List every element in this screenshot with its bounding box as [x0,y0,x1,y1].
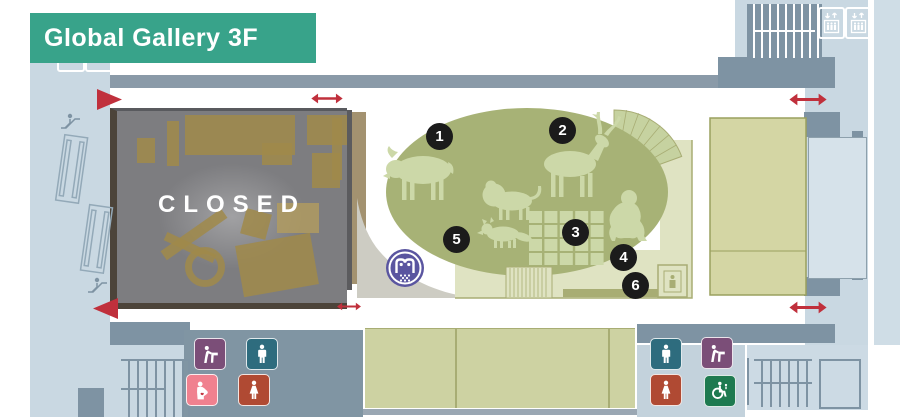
marker-number: 6 [631,277,639,294]
womens-restroom-icon [238,374,270,406]
page-title: Global Gallery 3F [30,13,316,63]
nursing-room-icon [186,374,218,406]
exhibit-marker-3: 3 [562,219,589,246]
exhibit-marker-1: 1 [426,123,453,150]
womens-restroom-icon [650,374,682,406]
escalator-shaft [56,135,88,204]
elevator-icon [845,7,872,39]
accessible-restroom-icon [704,375,736,407]
marker-number: 1 [435,128,443,145]
exhibit-marker-5: 5 [443,226,470,253]
floor-map: CLOSED [0,0,900,417]
double-arrow-icon [336,300,362,313]
mens-restroom-icon [246,338,278,370]
double-arrow-icon [310,91,344,106]
double-arrow-icon [786,91,830,108]
escalator-shaft [81,205,113,274]
marker-number: 4 [619,249,627,266]
stairs-exhibit-room [506,267,552,298]
elevator-icon [818,7,845,39]
marker-number: 5 [452,231,460,248]
khaki-room [710,118,806,295]
exhibit-marker-box [658,265,687,297]
page-title-text: Global Gallery 3F [44,24,258,53]
museum-logo-icon [385,248,425,288]
drinking-fountain-icon [701,337,733,369]
drinking-fountain-icon [194,338,226,370]
double-arrow-icon [786,299,830,316]
exhibit-marker-2: 2 [549,117,576,144]
escalator-icon [88,278,107,292]
exhibit-marker-6: 6 [622,272,649,299]
marker-number: 3 [571,224,579,241]
escalator-icon [61,114,80,128]
triangle-arrow-icon [96,88,123,111]
mens-restroom-icon [650,338,682,370]
triangle-arrow-icon [92,297,119,320]
marker-number: 2 [558,122,566,139]
exhibit-marker-4: 4 [610,244,637,271]
